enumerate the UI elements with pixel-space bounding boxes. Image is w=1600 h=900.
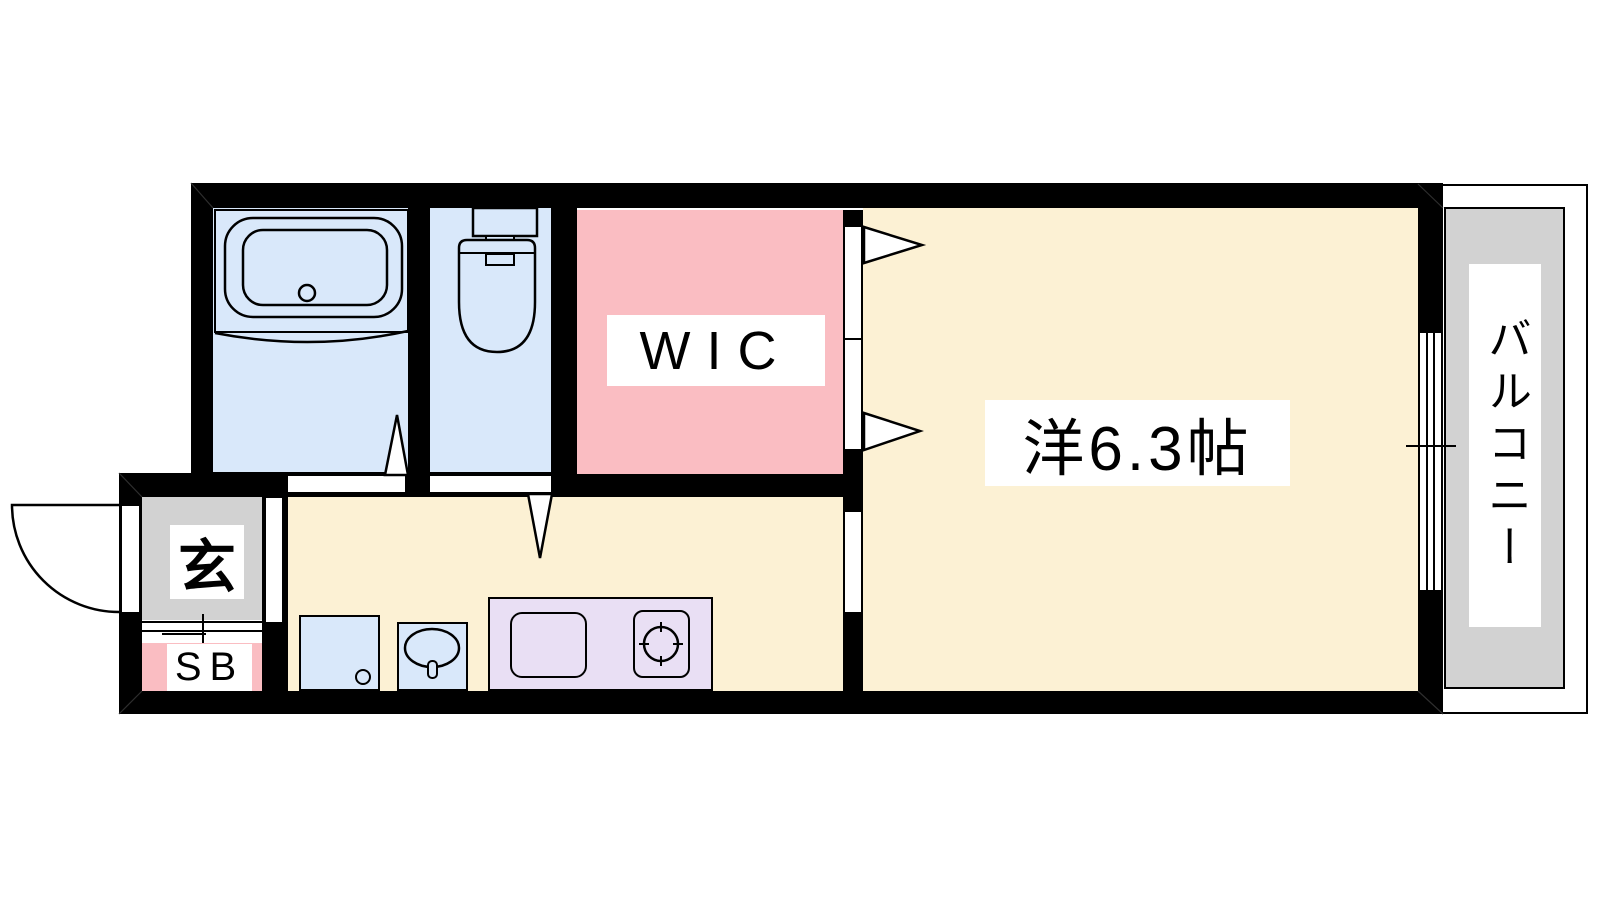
toilet-door-opening [430, 474, 551, 494]
wall-toilet-wic [551, 208, 577, 497]
entrance-label: 玄 [170, 525, 244, 599]
stove [633, 610, 690, 678]
entrance-step [142, 620, 262, 643]
window-pane-line [1433, 333, 1435, 590]
wall-wic-south [577, 474, 843, 497]
wall-bath-toilet [408, 208, 430, 497]
front-door-jamb [120, 506, 141, 612]
wic-door-divider [845, 338, 861, 340]
wic-double-door [843, 225, 863, 451]
wall-entrance-north [119, 473, 296, 497]
wic-label: WIC [607, 315, 825, 386]
mainroom-door-opening [843, 510, 863, 614]
floor-plan: WIC 洋6.3帖 玄 SB バルコニー [0, 0, 1600, 900]
kitchen-sink [510, 612, 587, 678]
wall-bottom [119, 691, 1443, 714]
washing-machine [299, 615, 380, 691]
wall-right-lower [1418, 590, 1443, 691]
shoebox-label: SB [167, 644, 252, 691]
entrance-door-swing-arc [12, 505, 119, 612]
wall-right-upper [1418, 184, 1443, 333]
wall-top [191, 183, 1443, 208]
entrance-passage-opening [264, 498, 284, 622]
washbasin [397, 622, 468, 691]
window-pane-line [1426, 333, 1428, 590]
main-room-label: 洋6.3帖 [985, 400, 1290, 486]
wall-left [191, 208, 213, 473]
bathroom-door-opening [288, 474, 405, 494]
balcony-label: バルコニー [1469, 264, 1541, 627]
toilet-area [430, 208, 551, 472]
bathroom-area [213, 208, 408, 472]
balcony-window [1418, 333, 1443, 590]
